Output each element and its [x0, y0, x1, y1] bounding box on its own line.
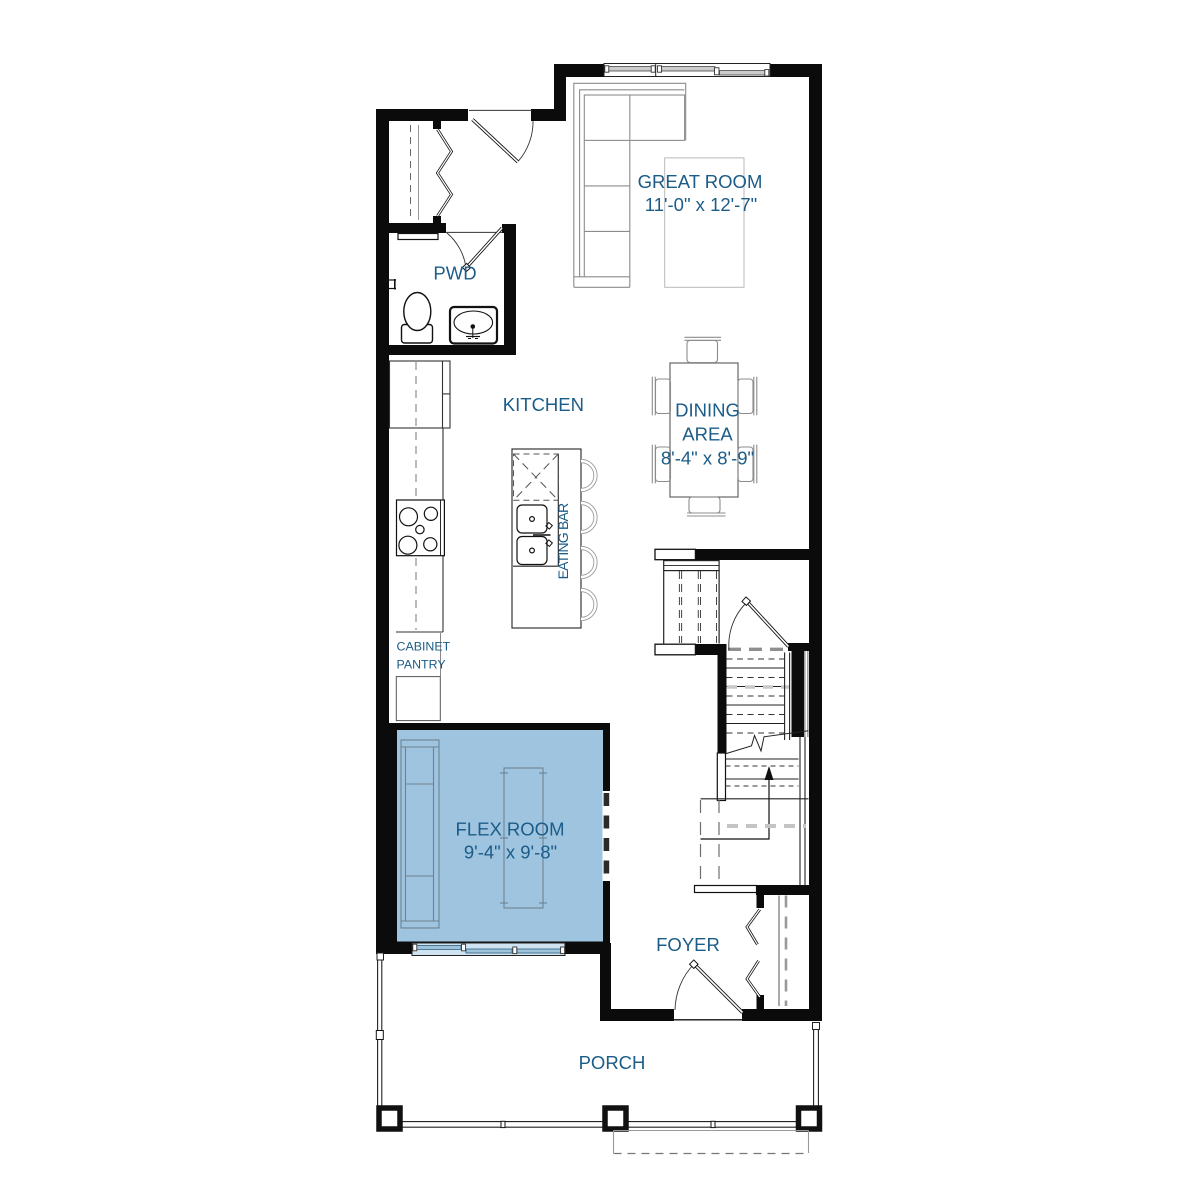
svg-text:PWD: PWD: [433, 263, 476, 284]
svg-text:EATING BAR: EATING BAR: [555, 503, 571, 579]
svg-text:11'-0" x 12'-7": 11'-0" x 12'-7": [645, 194, 757, 215]
svg-text:FOYER: FOYER: [656, 934, 720, 955]
svg-text:FLEX ROOM: FLEX ROOM: [456, 819, 565, 840]
svg-text:PANTRY: PANTRY: [397, 657, 446, 671]
svg-text:KITCHEN: KITCHEN: [503, 394, 584, 415]
svg-text:PORCH: PORCH: [579, 1052, 646, 1073]
svg-text:CABINET: CABINET: [397, 639, 451, 653]
svg-text:GREAT ROOM: GREAT ROOM: [638, 171, 763, 192]
svg-text:8'-4" x 8'-9": 8'-4" x 8'-9": [661, 447, 754, 468]
svg-text:DINING: DINING: [675, 400, 740, 421]
svg-text:AREA: AREA: [682, 423, 733, 444]
svg-text:9'-4" x 9'-8": 9'-4" x 9'-8": [464, 842, 557, 863]
